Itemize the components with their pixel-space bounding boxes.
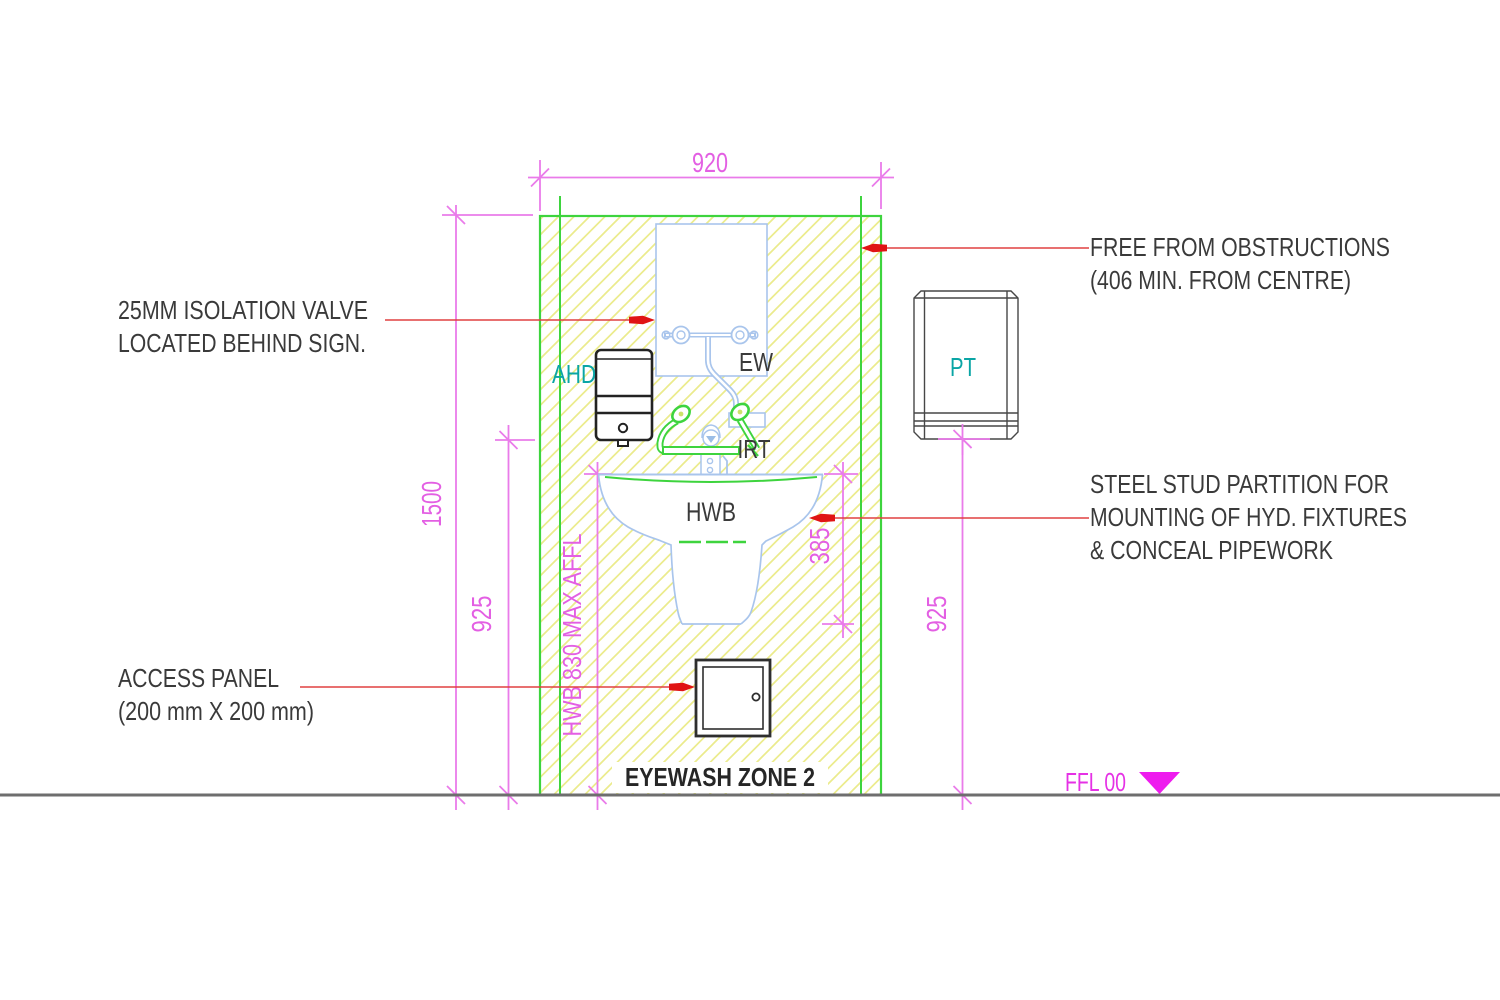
svg-text:MOUNTING OF HYD. FIXTURES: MOUNTING OF HYD. FIXTURES: [1090, 502, 1407, 532]
svg-text:HWB: HWB: [686, 497, 736, 527]
svg-text:& CONCEAL PIPEWORK: & CONCEAL PIPEWORK: [1090, 535, 1334, 565]
svg-text:FREE FROM OBSTRUCTIONS: FREE FROM OBSTRUCTIONS: [1090, 232, 1390, 262]
svg-text:920: 920: [692, 147, 728, 178]
svg-text:925: 925: [921, 596, 952, 633]
svg-text:AHD: AHD: [552, 359, 596, 389]
svg-text:ACCESS PANEL: ACCESS PANEL: [118, 663, 279, 693]
svg-text:STEEL STUD PARTITION FOR: STEEL STUD PARTITION FOR: [1090, 469, 1389, 499]
svg-text:EYEWASH ZONE 2: EYEWASH ZONE 2: [625, 762, 815, 792]
svg-text:PT: PT: [950, 352, 976, 382]
svg-text:FFL 00: FFL 00: [1065, 767, 1126, 797]
svg-text:(200 mm X 200 mm): (200 mm X 200 mm): [118, 696, 314, 726]
svg-text:EW: EW: [739, 347, 773, 377]
svg-text:LOCATED BEHIND SIGN.: LOCATED BEHIND SIGN.: [118, 328, 366, 358]
svg-text:1500: 1500: [416, 481, 447, 527]
svg-text:385: 385: [804, 528, 835, 565]
svg-text:IRT: IRT: [738, 434, 771, 464]
svg-text:HWB 830 MAX AFFL: HWB 830 MAX AFFL: [557, 534, 587, 737]
svg-text:925: 925: [466, 596, 497, 633]
svg-text:25MM ISOLATION VALVE: 25MM ISOLATION VALVE: [118, 295, 368, 325]
svg-text:(406 MIN. FROM CENTRE): (406 MIN. FROM CENTRE): [1090, 265, 1351, 295]
